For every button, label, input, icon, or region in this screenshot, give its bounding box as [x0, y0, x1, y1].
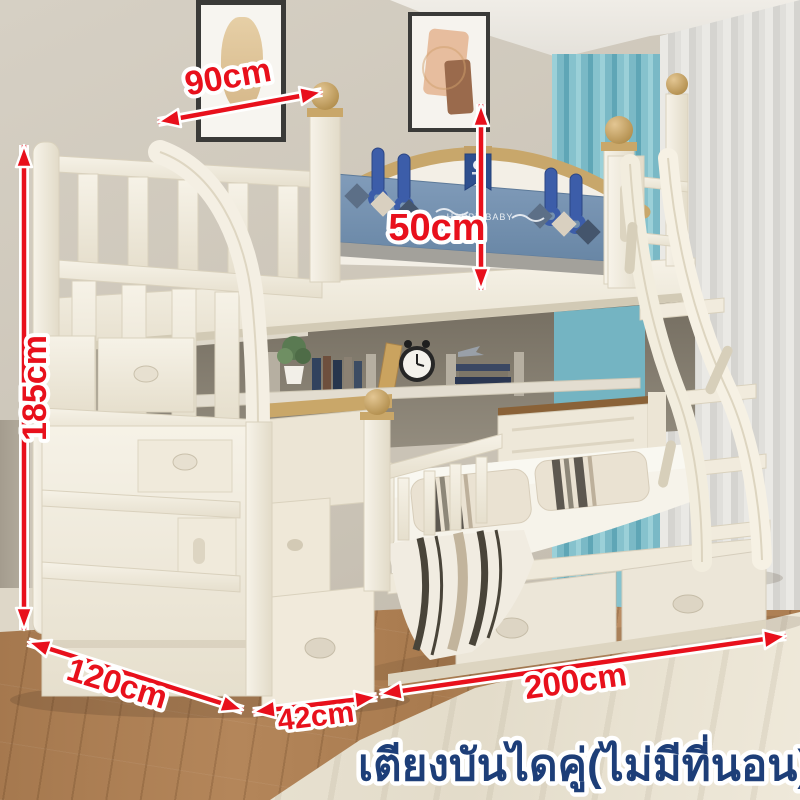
- product-image: HAPPY BABY: [0, 0, 800, 800]
- product-caption: เตียงบันไดคู่(ไม่มีที่นอน): [358, 734, 800, 792]
- dimension-label-42cm: 42cm: [276, 696, 356, 738]
- dimension-arrow-50cm: [473, 104, 489, 290]
- dimension-annotations: 90cm 50cm 185cm 120cm 42cm 200cm เตียงบั…: [0, 0, 800, 800]
- dimension-label-120cm: 120cm: [63, 650, 172, 715]
- dimension-label-90cm: 90cm: [182, 51, 274, 104]
- dimension-label-185cm: 185cm: [16, 335, 54, 441]
- dimension-label-50cm: 50cm: [388, 207, 485, 249]
- dimension-label-200cm: 200cm: [522, 655, 629, 706]
